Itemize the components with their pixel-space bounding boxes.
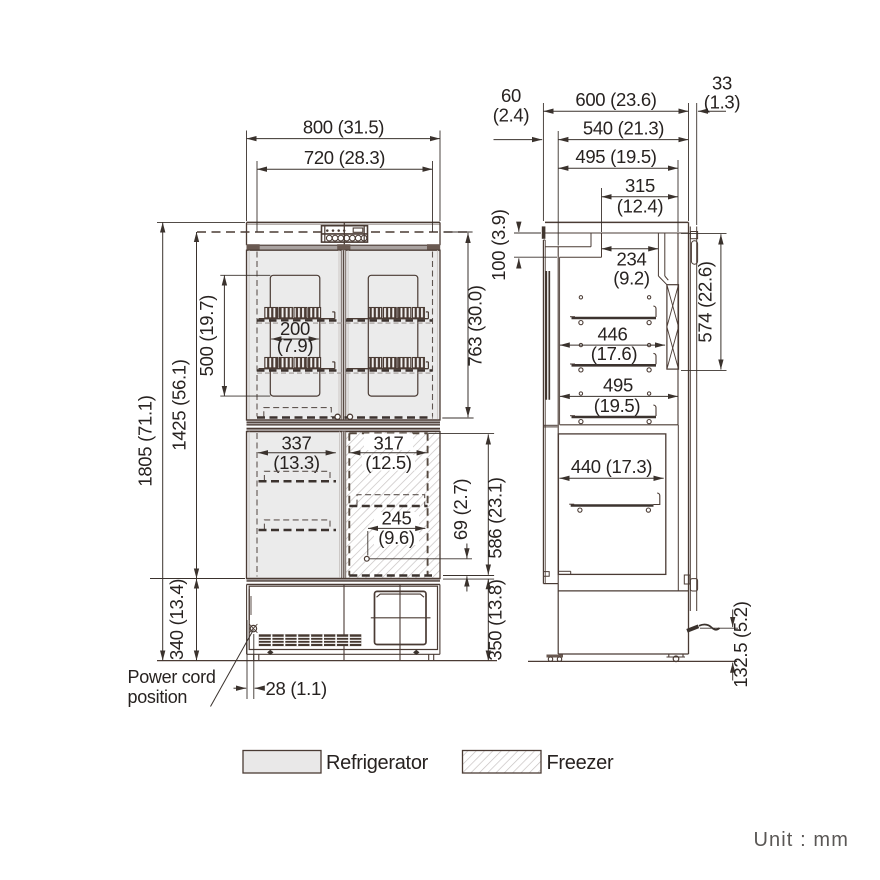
svg-text:(9.2): (9.2) xyxy=(613,268,650,289)
svg-text:(2.4): (2.4) xyxy=(493,105,530,126)
svg-text:763 (30.0): 763 (30.0) xyxy=(465,285,486,366)
svg-text:Freezer: Freezer xyxy=(547,752,614,774)
svg-text:337: 337 xyxy=(282,432,312,453)
svg-text:574 (22.6): 574 (22.6) xyxy=(695,261,716,342)
svg-text:Power cord: Power cord xyxy=(128,667,216,687)
svg-text:(7.9): (7.9) xyxy=(277,335,314,356)
svg-text:100 (3.9): 100 (3.9) xyxy=(488,209,509,280)
svg-text:Refrigerator: Refrigerator xyxy=(326,752,429,774)
svg-text:315: 315 xyxy=(625,175,655,196)
svg-text:1805 (71.1): 1805 (71.1) xyxy=(135,395,156,486)
svg-text:(13.3): (13.3) xyxy=(273,452,320,473)
svg-text:(12.5): (12.5) xyxy=(365,452,412,473)
svg-text:245: 245 xyxy=(382,508,412,529)
svg-text:440 (17.3): 440 (17.3) xyxy=(571,456,652,477)
svg-text:600 (23.6): 600 (23.6) xyxy=(575,89,656,110)
svg-text:132.5 (5.2): 132.5 (5.2) xyxy=(730,601,751,687)
svg-text:Unit : mm: Unit : mm xyxy=(754,829,849,851)
svg-text:350 (13.8): 350 (13.8) xyxy=(485,579,506,660)
svg-text:28 (1.1): 28 (1.1) xyxy=(266,678,327,699)
svg-text:(1.3): (1.3) xyxy=(704,92,741,113)
svg-text:(9.6): (9.6) xyxy=(378,527,415,548)
svg-text:446: 446 xyxy=(598,323,628,344)
svg-text:800 (31.5): 800 (31.5) xyxy=(303,117,384,138)
svg-text:(19.5): (19.5) xyxy=(594,395,641,416)
svg-text:500 (19.7): 500 (19.7) xyxy=(196,295,217,376)
svg-text:340 (13.4): 340 (13.4) xyxy=(166,579,187,660)
svg-text:317: 317 xyxy=(374,432,404,453)
svg-text:69 (2.7): 69 (2.7) xyxy=(450,479,471,540)
svg-text:(12.4): (12.4) xyxy=(617,195,664,216)
svg-text:60: 60 xyxy=(501,85,521,106)
svg-text:position: position xyxy=(128,687,188,707)
svg-text:495: 495 xyxy=(603,375,633,396)
svg-text:1425 (56.1): 1425 (56.1) xyxy=(169,359,190,450)
svg-text:495 (19.5): 495 (19.5) xyxy=(575,146,656,167)
svg-text:(17.6): (17.6) xyxy=(591,343,638,364)
svg-text:540 (21.3): 540 (21.3) xyxy=(583,118,664,139)
svg-text:234: 234 xyxy=(617,248,647,269)
svg-text:33: 33 xyxy=(712,73,732,94)
svg-text:586 (23.1): 586 (23.1) xyxy=(485,477,506,558)
svg-text:720 (28.3): 720 (28.3) xyxy=(304,147,385,168)
